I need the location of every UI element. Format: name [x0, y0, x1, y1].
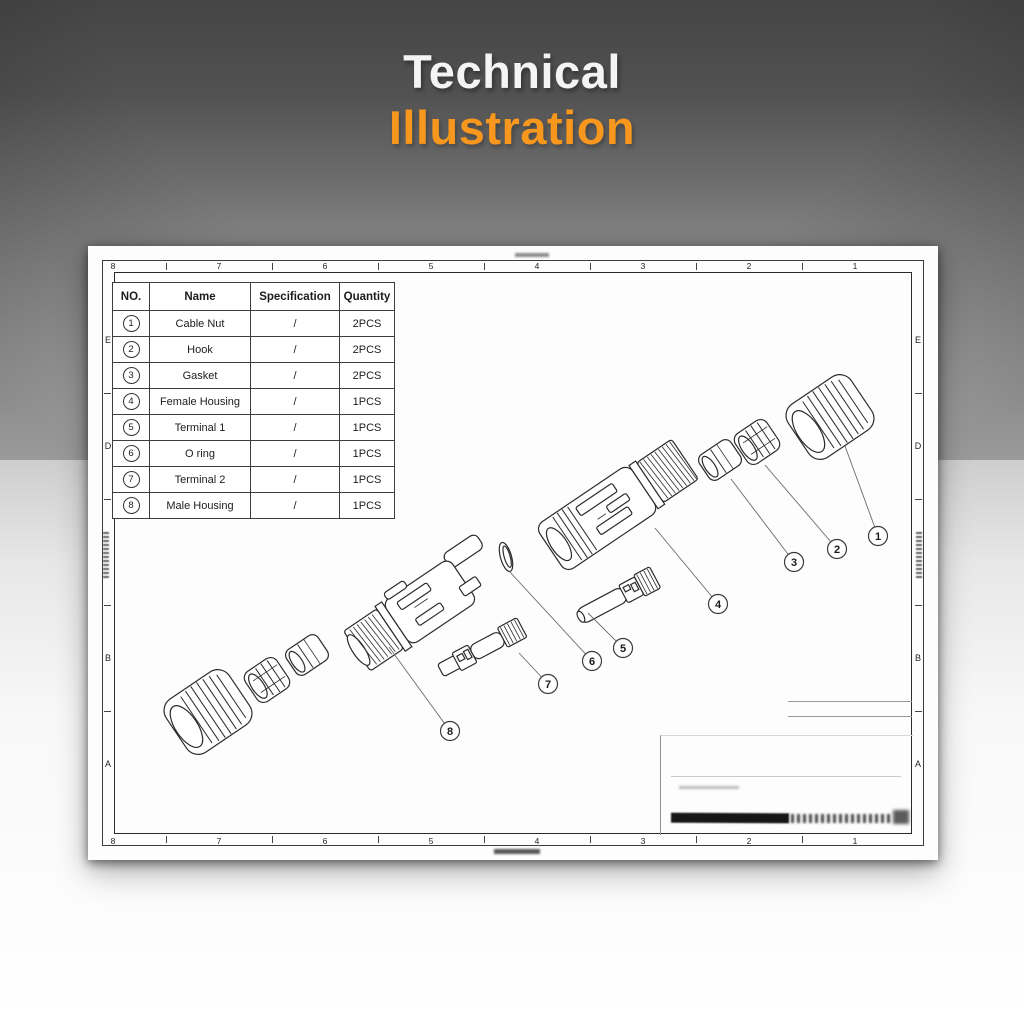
table-row: 2Hook/2PCS: [113, 337, 395, 363]
table-header-cell: Name: [150, 283, 251, 311]
table-cell-qty: 2PCS: [340, 363, 395, 389]
poster: Technical Illustration 8765432187654321E…: [0, 0, 1024, 1024]
ruler-number-top: 8: [107, 260, 119, 272]
part-number-badge: 7: [123, 471, 140, 488]
ruler-letter-right: B: [912, 652, 924, 664]
title-block: [660, 735, 913, 835]
ruler-tick: [590, 263, 591, 270]
ruler-tick: [484, 836, 485, 843]
ruler-number-bottom: 1: [849, 835, 861, 847]
ruler-number-bottom: 7: [213, 835, 225, 847]
ruler-tick: [104, 711, 111, 712]
ruler-tick: [696, 836, 697, 843]
ruler-tick: [166, 263, 167, 270]
ruler-number-top: 6: [319, 260, 331, 272]
ruler-tick: [378, 836, 379, 843]
table-cell-qty: 1PCS: [340, 441, 395, 467]
ruler-letter-right: D: [912, 440, 924, 452]
ruler-number-top: 7: [213, 260, 225, 272]
parts-table-body: 1Cable Nut/2PCS2Hook/2PCS3Gasket/2PCS4Fe…: [113, 311, 395, 519]
table-cell-no: 6: [113, 441, 150, 467]
ruler-tick: [104, 393, 111, 394]
drawing-sheet: 8765432187654321EDBAEDBA NO.NameSpecific…: [88, 246, 938, 860]
ruler-number-top: 4: [531, 260, 543, 272]
ruler-tick: [272, 263, 273, 270]
table-cell-spec: /: [251, 467, 340, 493]
table-cell-name: Female Housing: [150, 389, 251, 415]
table-cell-qty: 1PCS: [340, 493, 395, 519]
table-cell-name: Male Housing: [150, 493, 251, 519]
ruler-tick: [166, 836, 167, 843]
table-cell-spec: /: [251, 493, 340, 519]
ruler-tick: [104, 605, 111, 606]
table-cell-spec: /: [251, 311, 340, 337]
ruler-letter-left: B: [102, 652, 114, 664]
ruler-tick: [915, 393, 922, 394]
ruler-tick: [696, 263, 697, 270]
part-number-badge: 2: [123, 341, 140, 358]
table-cell-name: Gasket: [150, 363, 251, 389]
table-cell-no: 8: [113, 493, 150, 519]
ruler-number-bottom: 2: [743, 835, 755, 847]
ruler-letter-right: E: [912, 334, 924, 346]
table-row: 8Male Housing/1PCS: [113, 493, 395, 519]
table-cell-spec: /: [251, 337, 340, 363]
part-number-badge: 6: [123, 445, 140, 462]
scan-smudge-bottom: [494, 849, 540, 854]
table-cell-no: 3: [113, 363, 150, 389]
ruler-number-bottom: 6: [319, 835, 331, 847]
scan-smudge-left: [103, 532, 109, 578]
table-cell-name: Cable Nut: [150, 311, 251, 337]
table-row: 1Cable Nut/2PCS: [113, 311, 395, 337]
ruler-letter-left: A: [102, 758, 114, 770]
table-row: 6O ring/1PCS: [113, 441, 395, 467]
ruler-tick: [378, 263, 379, 270]
ruler-letter-right: A: [912, 758, 924, 770]
part-number-badge: 8: [123, 497, 140, 514]
table-row: 4Female Housing/1PCS: [113, 389, 395, 415]
ruler-number-top: 5: [425, 260, 437, 272]
table-header-cell: NO.: [113, 283, 150, 311]
ruler-number-top: 3: [637, 260, 649, 272]
table-cell-no: 5: [113, 415, 150, 441]
ruler-tick: [104, 499, 111, 500]
ruler-tick: [802, 263, 803, 270]
ruler-tick: [915, 605, 922, 606]
ruler-number-bottom: 3: [637, 835, 649, 847]
table-cell-spec: /: [251, 415, 340, 441]
table-row: 5Terminal 1/1PCS: [113, 415, 395, 441]
ruler-tick: [915, 711, 922, 712]
table-row: 3Gasket/2PCS: [113, 363, 395, 389]
ruler-tick: [272, 836, 273, 843]
ruler-number-top: 1: [849, 260, 861, 272]
table-cell-qty: 1PCS: [340, 467, 395, 493]
table-cell-no: 1: [113, 311, 150, 337]
table-cell-no: 2: [113, 337, 150, 363]
poster-title: Technical Illustration: [0, 44, 1024, 156]
title-line-1: Technical: [0, 44, 1024, 100]
table-cell-qty: 1PCS: [340, 389, 395, 415]
table-cell-qty: 2PCS: [340, 311, 395, 337]
table-cell-spec: /: [251, 441, 340, 467]
table-cell-qty: 1PCS: [340, 415, 395, 441]
title-block-smudge-text: [791, 814, 891, 823]
part-number-badge: 3: [123, 367, 140, 384]
ruler-tick: [484, 263, 485, 270]
scan-smudge-top: [515, 253, 549, 257]
table-cell-name: Terminal 1: [150, 415, 251, 441]
ruler-tick: [915, 499, 922, 500]
table-cell-no: 7: [113, 467, 150, 493]
ruler-number-bottom: 4: [531, 835, 543, 847]
table-cell-spec: /: [251, 389, 340, 415]
title-line-2: Illustration: [0, 100, 1024, 156]
table-cell-no: 4: [113, 389, 150, 415]
part-number-badge: 4: [123, 393, 140, 410]
ruler-tick: [590, 836, 591, 843]
parts-table-header-row: NO.NameSpecificationQuantity: [113, 283, 395, 311]
ruler-number-top: 2: [743, 260, 755, 272]
table-cell-name: Hook: [150, 337, 251, 363]
ruler-tick: [802, 836, 803, 843]
scan-smudge-right: [916, 532, 922, 578]
table-cell-qty: 2PCS: [340, 337, 395, 363]
table-row: 7Terminal 2/1PCS: [113, 467, 395, 493]
part-number-badge: 5: [123, 419, 140, 436]
table-header-cell: Specification: [251, 283, 340, 311]
part-number-badge: 1: [123, 315, 140, 332]
table-cell-spec: /: [251, 363, 340, 389]
table-header-cell: Quantity: [340, 283, 395, 311]
ruler-number-bottom: 8: [107, 835, 119, 847]
table-cell-name: Terminal 2: [150, 467, 251, 493]
ruler-number-bottom: 5: [425, 835, 437, 847]
table-cell-name: O ring: [150, 441, 251, 467]
title-block-smudge-bar: [671, 813, 789, 824]
parts-table: NO.NameSpecificationQuantity 1Cable Nut/…: [112, 282, 395, 519]
